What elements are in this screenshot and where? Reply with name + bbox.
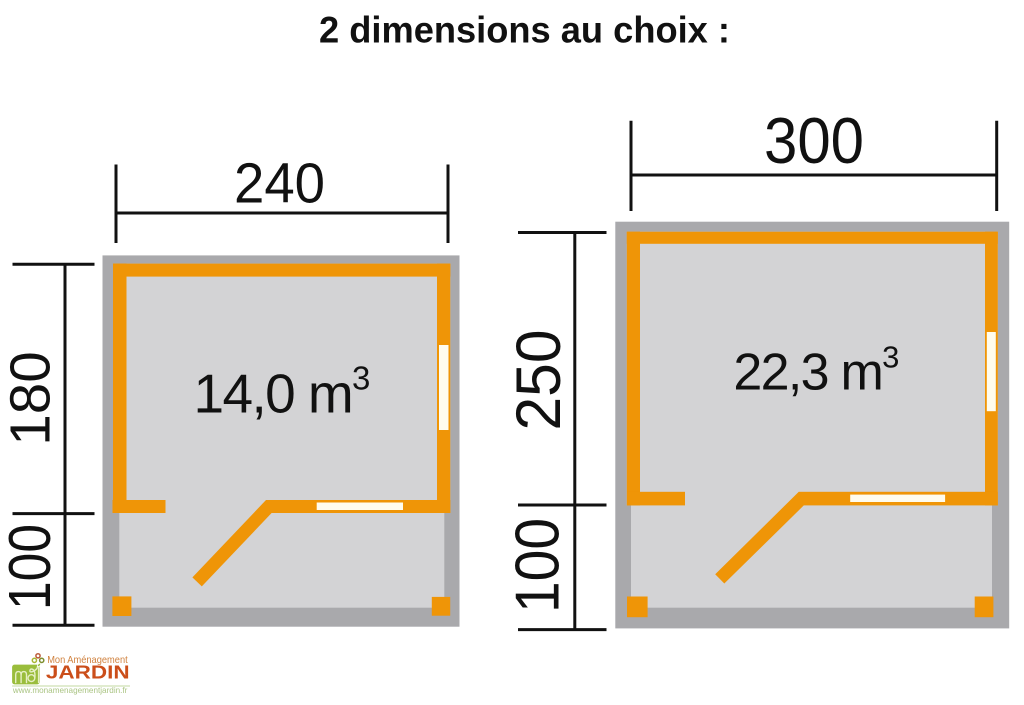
svg-text:250: 250	[504, 330, 574, 431]
svg-text:240: 240	[234, 152, 325, 215]
svg-text:14,0 m3: 14,0 m3	[194, 360, 370, 425]
svg-text:22,3 m3: 22,3 m3	[733, 340, 898, 402]
svg-text:2 dimensions au choix :: 2 dimensions au choix :	[319, 10, 730, 51]
svg-text:300: 300	[764, 105, 864, 177]
svg-text:180: 180	[0, 351, 62, 445]
svg-text:100: 100	[0, 524, 63, 610]
svg-text:www.monamenagementjardin.fr: www.monamenagementjardin.fr	[12, 685, 128, 695]
svg-text:100: 100	[503, 518, 573, 613]
svg-text:JARDIN: JARDIN	[46, 662, 130, 683]
